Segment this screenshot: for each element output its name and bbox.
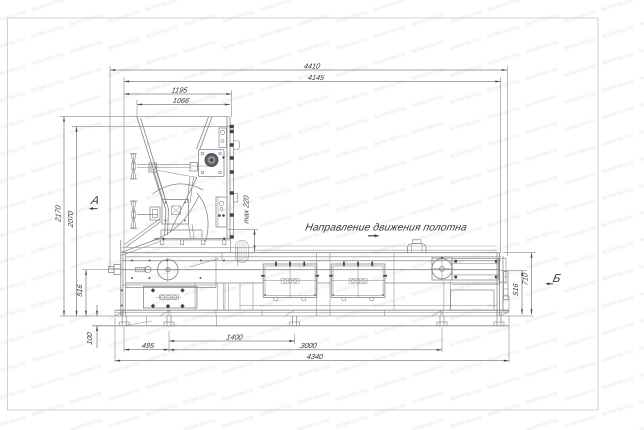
svg-text:4145: 4145 — [307, 73, 326, 82]
svg-text:max 220: max 220 — [242, 194, 251, 225]
svg-text:1066: 1066 — [172, 96, 191, 105]
svg-text:4340: 4340 — [306, 352, 325, 361]
svg-text:1400: 1400 — [225, 332, 244, 341]
svg-text:4410: 4410 — [303, 62, 322, 71]
svg-text:2070: 2070 — [66, 209, 75, 229]
svg-text:Направление движения полотна: Направление движения полотна — [304, 223, 468, 234]
svg-text:2170: 2170 — [54, 204, 63, 224]
svg-text:3000: 3000 — [299, 341, 318, 350]
svg-text:1195: 1195 — [171, 86, 189, 95]
